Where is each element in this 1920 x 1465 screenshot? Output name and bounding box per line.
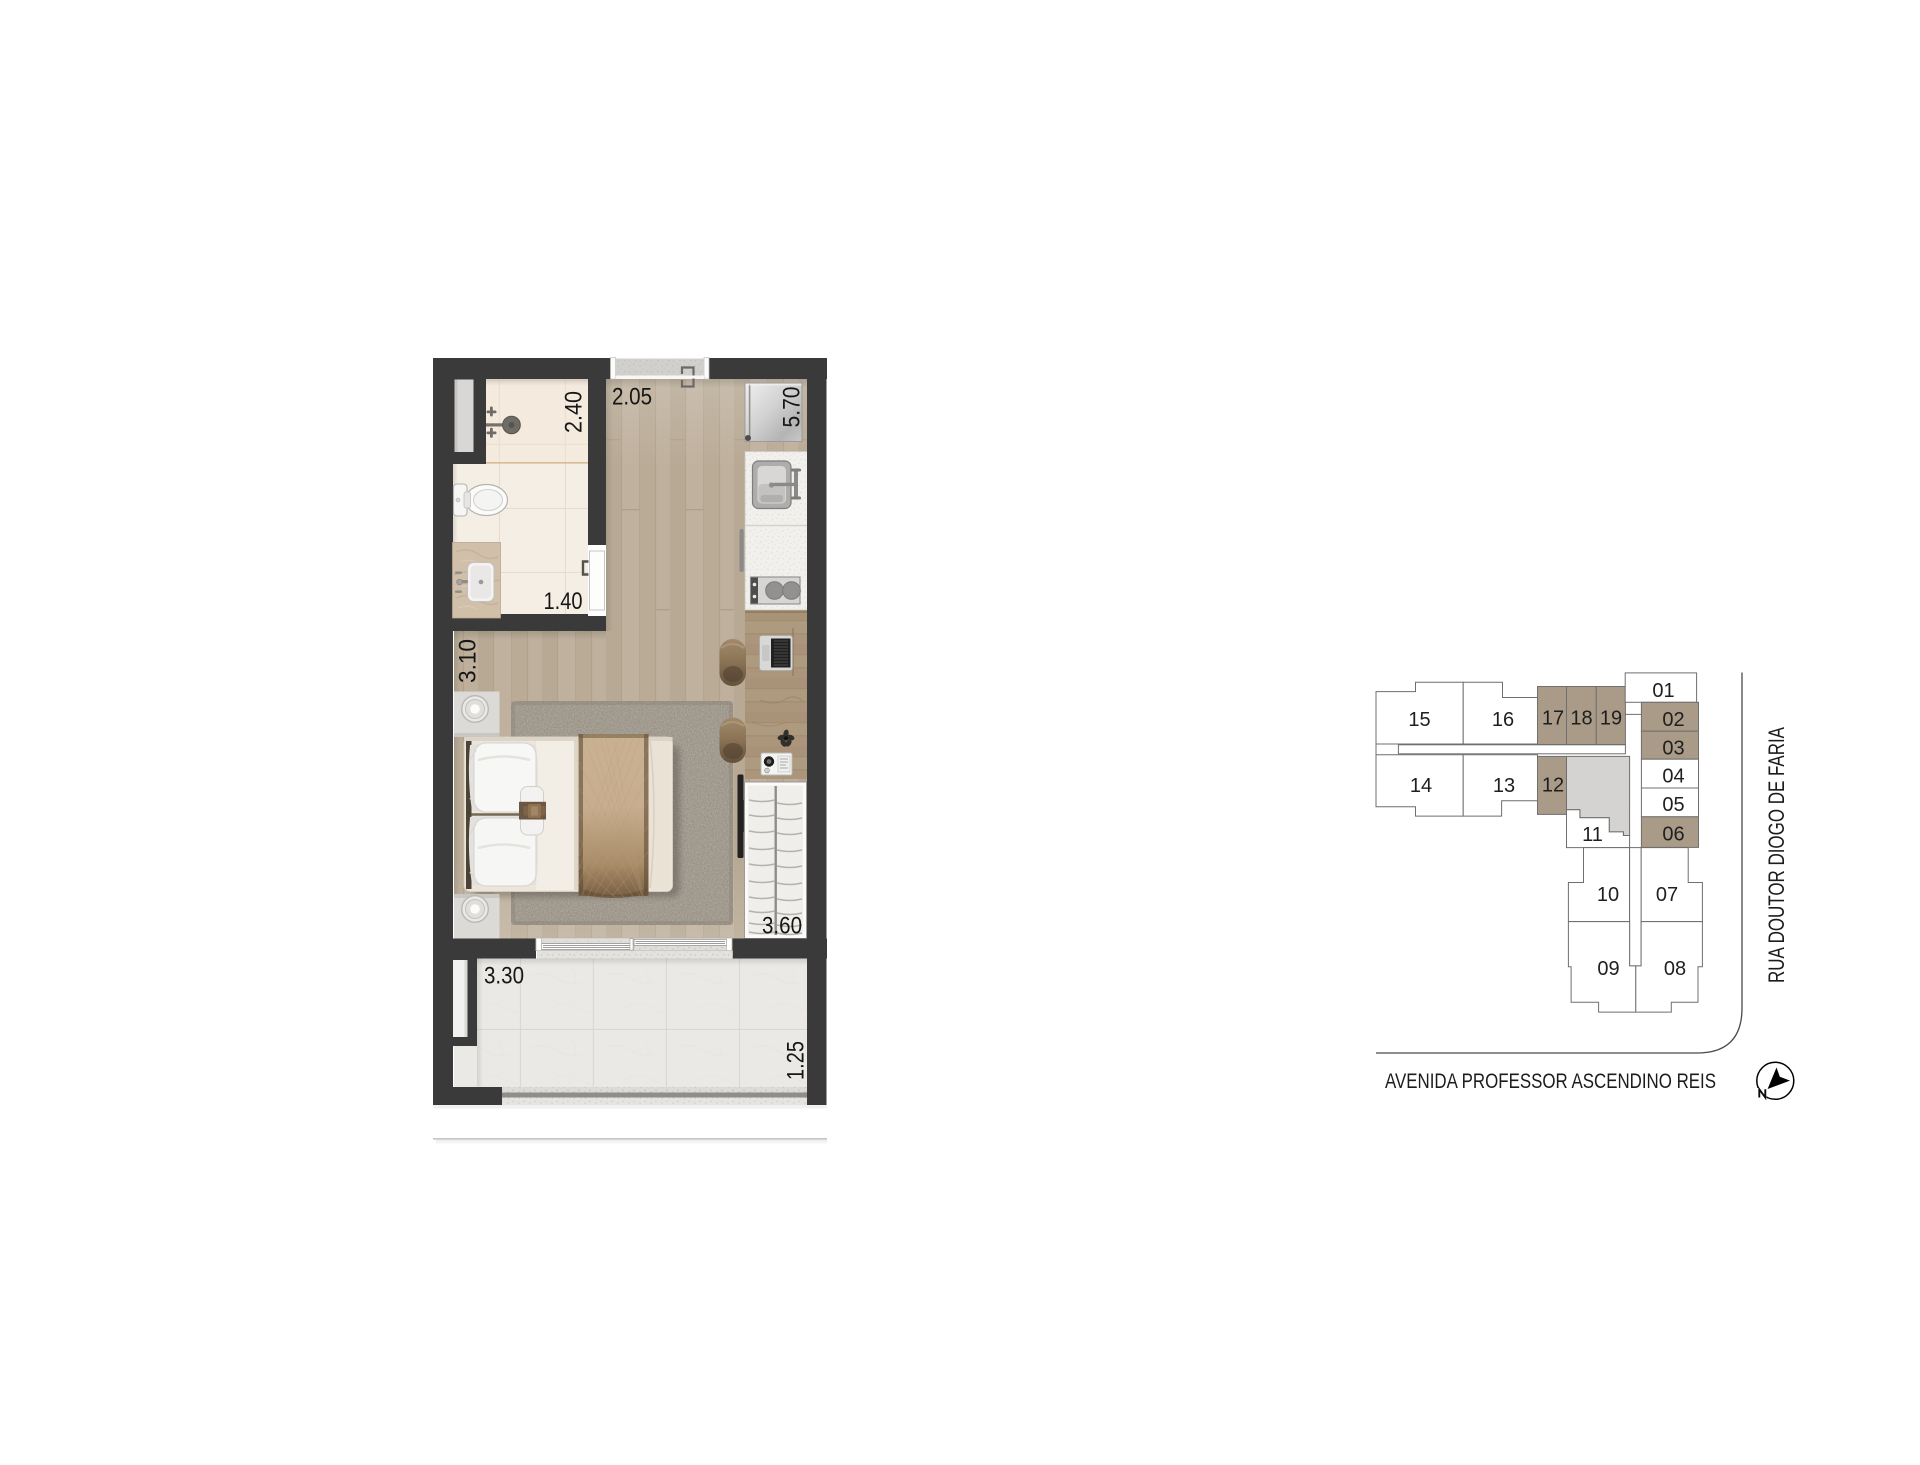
svg-text:3.10: 3.10	[455, 639, 482, 683]
svg-text:1.25: 1.25	[783, 1041, 810, 1080]
svg-text:3.60: 3.60	[762, 913, 802, 940]
svg-text:17: 17	[1542, 708, 1564, 730]
svg-text:16: 16	[1492, 709, 1514, 731]
svg-text:07: 07	[1656, 884, 1678, 906]
svg-text:10: 10	[1597, 884, 1619, 906]
svg-text:1.40: 1.40	[544, 588, 583, 615]
svg-text:18: 18	[1570, 708, 1592, 730]
svg-text:14: 14	[1410, 775, 1432, 797]
svg-text:12: 12	[1542, 775, 1564, 797]
svg-text:11: 11	[1582, 824, 1603, 846]
svg-text:5.70: 5.70	[779, 387, 806, 428]
svg-text:3.30: 3.30	[484, 963, 524, 990]
svg-text:06: 06	[1662, 824, 1684, 846]
svg-text:04: 04	[1662, 766, 1684, 788]
svg-text:09: 09	[1597, 958, 1619, 980]
svg-text:RUA DOUTOR DIOGO DE FARIA: RUA DOUTOR DIOGO DE FARIA	[1764, 727, 1789, 983]
svg-text:02: 02	[1662, 709, 1684, 731]
svg-text:08: 08	[1664, 958, 1686, 980]
svg-text:01: 01	[1652, 680, 1674, 702]
svg-text:19: 19	[1600, 708, 1622, 730]
svg-text:05: 05	[1662, 794, 1684, 816]
svg-text:15: 15	[1408, 709, 1430, 731]
svg-text:AVENIDA PROFESSOR ASCENDINO RE: AVENIDA PROFESSOR ASCENDINO REIS	[1385, 1069, 1716, 1093]
svg-text:2.40: 2.40	[561, 391, 588, 433]
svg-text:13: 13	[1493, 775, 1515, 797]
svg-text:03: 03	[1662, 738, 1684, 760]
svg-text:2.05: 2.05	[612, 384, 652, 411]
